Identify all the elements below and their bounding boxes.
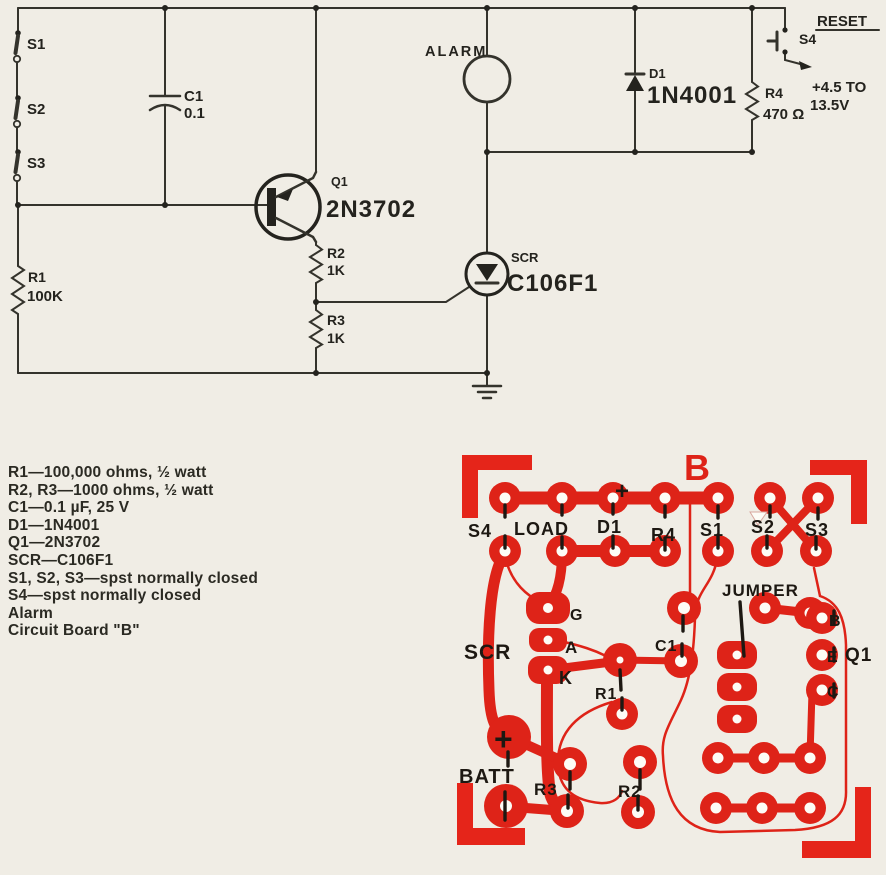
pcb-layout: B S4LOADD1R4S1S2S3+JUMPERC1SCRGAKR1BEQ1C… [455,446,886,875]
pcb-pad-hole [813,493,824,504]
parts-list-line: S4—spst normally closed [8,587,448,605]
resistor-r4 [746,82,758,120]
pcb-pad-hole [713,493,724,504]
pcb-pad-hole [733,651,742,660]
pcb-pad-hole [713,753,724,764]
parts-list: R1—100,000 ohms, ½ watt R2, R3—1000 ohms… [8,464,448,640]
pcb-label: SCR [464,641,511,664]
pcb-pad-hole [610,546,621,557]
pcb-label: JUMPER [722,581,799,600]
label-r3-ref: R3 [327,312,345,328]
pcb-label: R3 [534,780,558,799]
pcb-label: R1 [595,686,617,703]
figure-alarm-circuit: S1 S2 S3 C1 0.1 R1 100K Q1 2N3702 R2 1K … [0,0,886,875]
pcb-pad-hole [765,493,776,504]
parts-list-line: Alarm [8,605,448,623]
pcb-label: K [559,668,573,688]
label-d1-val: 1N4001 [647,82,737,109]
parts-list-line: Circuit Board "B" [8,622,448,640]
pcb-pad-hole [817,650,828,661]
switch-s2 [14,95,21,127]
parts-list-line: Q1—2N3702 [8,534,448,552]
pcb-label: + [615,478,630,505]
pcb-label: B [829,613,842,630]
resistor-r2 [310,245,322,283]
junction-dots [15,5,755,376]
resistor-r3 [310,310,322,348]
pcb-label: A [565,638,578,657]
pcb-label: D1 [597,517,622,537]
supply-arrow [799,61,812,70]
pcb-pad-hole [757,803,768,814]
parts-list-line: R2, R3—1000 ohms, ½ watt [8,482,448,500]
parts-list-line: R1—100,000 ohms, ½ watt [8,464,448,482]
pcb-label: Q1 [845,645,872,666]
label-alarm: ALARM [425,44,487,60]
pcb-trace [526,808,552,810]
transistor-q1 [256,172,320,242]
schematic-diagram: S1 S2 S3 C1 0.1 R1 100K Q1 2N3702 R2 1K … [0,0,886,445]
diode-d1 [626,74,644,91]
label-r2-ref: R2 [327,245,345,261]
label-r2-val: 1K [327,262,345,278]
pcb-pad-hole [733,715,742,724]
pcb-label: R4 [651,525,676,545]
pcb-label: C [827,684,840,701]
pcb-label: G [570,607,583,624]
pcb-pad-hole [564,758,576,770]
label-s2: S2 [27,101,45,118]
ground-symbol [473,386,501,398]
pcb-label: + [494,721,514,757]
label-supply-2: 13.5V [810,97,849,114]
pcb-pad-hole [557,493,568,504]
pcb-label: S4 [468,521,492,541]
pcb-pad-hole [805,803,816,814]
pcb-pad-hole [544,666,553,675]
pcb-label: S1 [700,520,724,540]
pcb-pad-hole [544,636,553,645]
label-d1-ref: D1 [649,66,666,81]
parts-list-line: SCR—C106F1 [8,552,448,570]
label-q1-ref: Q1 [331,175,348,189]
resistor-r1 [12,266,24,314]
label-scr-val: C106F1 [507,270,598,297]
parts-list-line: D1—1N4001 [8,517,448,535]
pcb-title: B [684,447,710,488]
pcb-pad-hole [660,493,671,504]
pcb-component-lead [620,670,621,690]
label-r1-ref: R1 [28,269,46,285]
pcb-label: BATT [459,766,515,788]
switch-s3 [14,149,21,181]
label-reset: RESET [817,13,867,30]
pcb-pad-hole [634,756,646,768]
alarm-symbol [464,56,510,102]
switch-s1 [14,30,21,62]
label-s1: S1 [27,36,45,53]
label-r3-val: 1K [327,330,345,346]
pcb-pad-hole [500,493,511,504]
pcb-label: S3 [805,520,829,540]
label-s4: S4 [799,31,816,47]
label-s3: S3 [27,155,45,172]
pcb-label: S2 [751,517,775,537]
pcb-label: C1 [655,638,677,655]
label-supply-1: +4.5 TO [812,79,867,96]
switch-s4 [768,27,788,54]
pcb-pad-hole [711,803,722,814]
label-r4-val: 470 Ω [763,106,804,123]
pcb-pad-hole [617,657,624,664]
label-c1-val: 0.1 [184,105,205,122]
pcb-label: R2 [618,782,642,801]
pcb-pad-hole [760,603,771,614]
pcb-pad-hole [733,683,742,692]
parts-list-line: C1—0.1 µF, 25 V [8,499,448,517]
scr-symbol [466,253,508,295]
pcb-pad-hole [759,753,770,764]
label-r4-ref: R4 [765,85,783,101]
pcb-pad-hole [817,613,828,624]
pcb-label: LOAD [514,519,569,539]
pcb-pad-hole [805,753,816,764]
label-r1-val: 100K [27,288,63,305]
pcb-pad-hole [817,685,828,696]
label-scr-ref: SCR [511,250,539,265]
parts-list-line: S1, S2, S3—spst normally closed [8,570,448,588]
label-c1-ref: C1 [184,88,203,105]
pcb-pad-hole [543,603,553,613]
pcb-pad-hole [678,602,690,614]
pcb-label: E [827,649,839,666]
label-q1-val: 2N3702 [326,196,416,223]
